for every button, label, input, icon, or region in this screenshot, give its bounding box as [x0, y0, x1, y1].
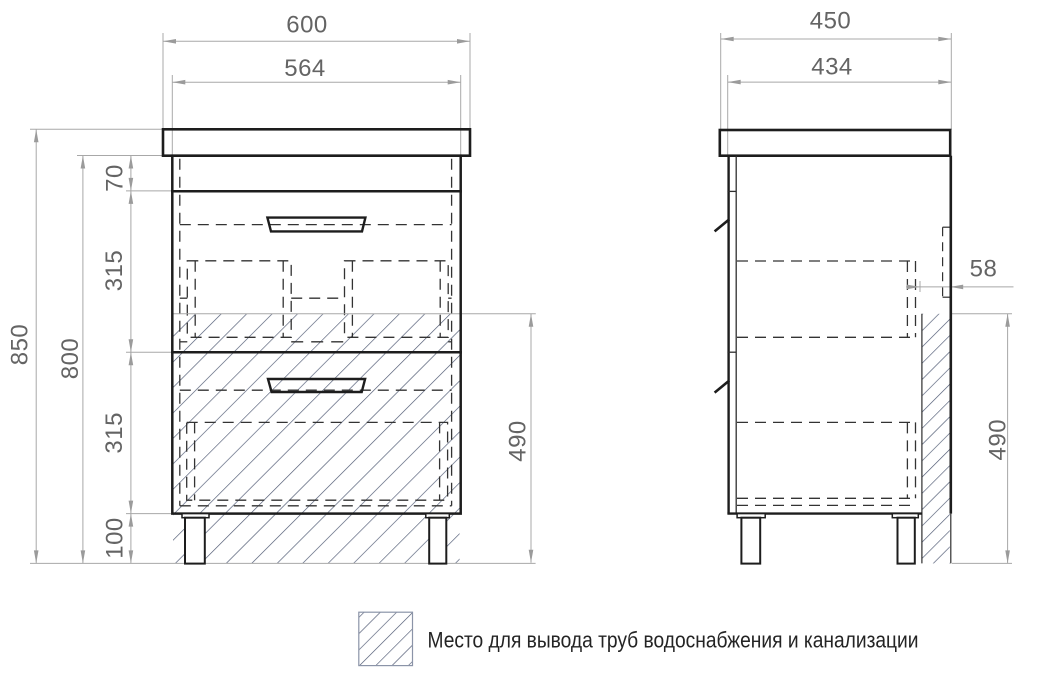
- svg-text:800: 800: [57, 338, 84, 380]
- svg-text:450: 450: [810, 8, 852, 35]
- svg-text:315: 315: [101, 250, 128, 292]
- svg-text:315: 315: [101, 412, 128, 454]
- svg-text:434: 434: [811, 54, 853, 81]
- svg-text:Место для вывода труб водоснаб: Место для вывода труб водоснабжения и ка…: [428, 628, 919, 653]
- svg-text:58: 58: [970, 256, 998, 283]
- svg-text:490: 490: [505, 420, 532, 462]
- svg-text:564: 564: [284, 55, 326, 82]
- svg-text:600: 600: [286, 12, 328, 39]
- svg-text:850: 850: [7, 324, 34, 366]
- svg-text:100: 100: [102, 517, 129, 559]
- svg-text:490: 490: [985, 419, 1012, 461]
- svg-text:70: 70: [102, 164, 129, 192]
